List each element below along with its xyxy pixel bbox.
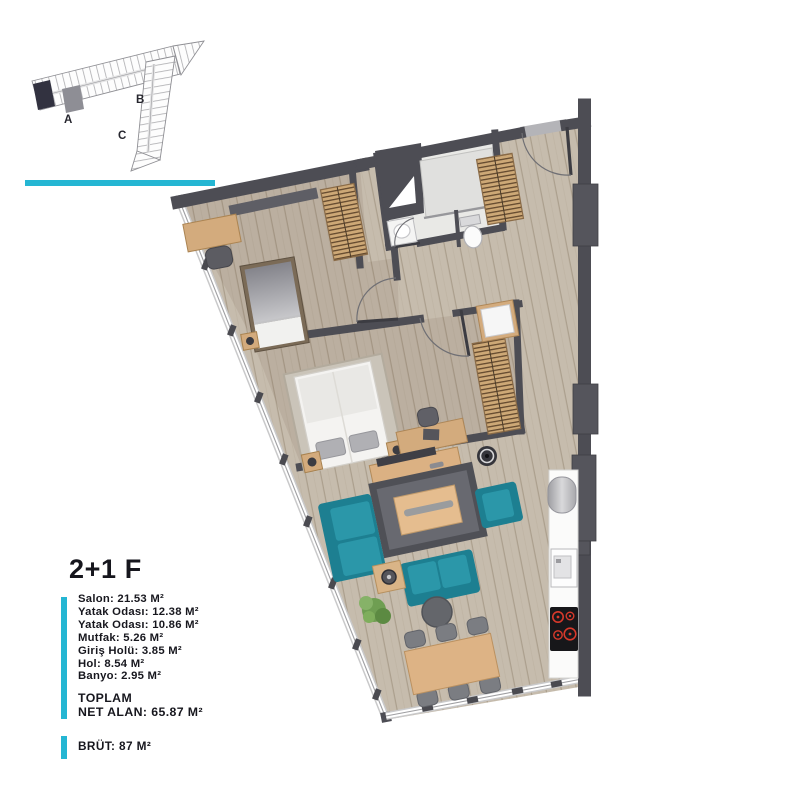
kitchen <box>548 470 578 678</box>
ottoman <box>422 597 452 627</box>
key-plan-label-a: A <box>64 114 72 126</box>
key-plan-gray-unit <box>62 85 84 113</box>
net-area-value: NET ALAN: 65.87 M² <box>78 706 203 720</box>
gross-area-value: BRÜT: 87 M² <box>78 739 151 753</box>
accent-bar-brut <box>61 736 67 759</box>
room-area-entry-hall: Giriş Holü: 3.85 M² <box>78 645 203 658</box>
room-area-bedroom-2: Yatak Odası: 10.86 M² <box>78 619 203 632</box>
key-plan-label-b: B <box>136 94 144 106</box>
side-table <box>372 560 405 593</box>
total-area-block: TOPLAM NET ALAN: 65.87 M² <box>78 692 203 719</box>
key-plan-wing-a <box>32 41 204 110</box>
fridge <box>551 549 577 587</box>
nightstand <box>241 332 260 351</box>
armchair <box>474 481 523 529</box>
accent-bar-rooms <box>61 597 67 719</box>
unit-title: 2+1 F <box>69 554 142 585</box>
hall-speaker <box>477 446 497 466</box>
cooktop <box>550 607 578 651</box>
floorplan-page: A B C <box>0 0 800 800</box>
room-area-list: Salon: 21.53 M² Yatak Odası: 12.38 M² Ya… <box>78 593 203 719</box>
key-plan: A B C <box>25 41 215 186</box>
room-area-bedroom-1: Yatak Odası: 12.38 M² <box>78 606 203 619</box>
key-plan-label-c: C <box>118 130 126 142</box>
room-area-kitchen: Mutfak: 5.26 M² <box>78 632 203 645</box>
niche-appliance <box>476 300 519 342</box>
room-area-bathroom: Banyo: 2.95 M² <box>78 670 203 683</box>
total-label: TOPLAM <box>78 692 203 706</box>
sink <box>387 217 417 246</box>
floor-plan <box>175 105 598 723</box>
room-area-salon: Salon: 21.53 M² <box>78 593 203 606</box>
kitchen-cylinder <box>548 477 576 513</box>
key-plan-underline <box>25 180 215 186</box>
room-area-hall: Hol: 8.54 M² <box>78 658 203 671</box>
nightstand-left <box>301 451 322 472</box>
